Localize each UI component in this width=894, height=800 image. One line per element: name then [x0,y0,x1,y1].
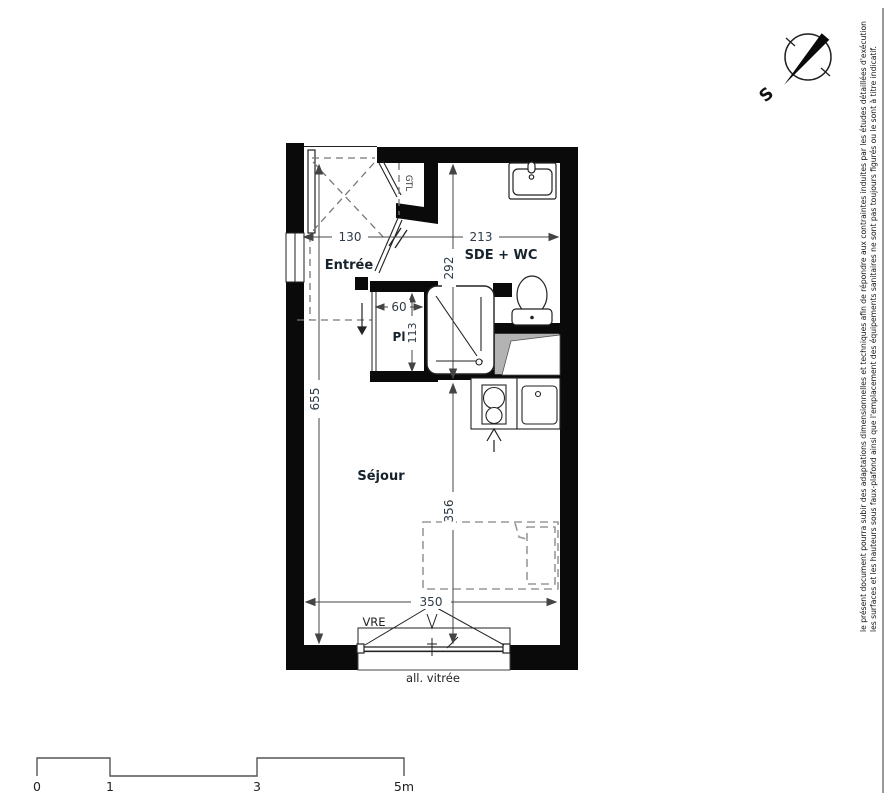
dim-sde-height: 292 [442,257,456,280]
duct-symbol [494,333,560,375]
dim-entree-width: 130 [339,230,362,244]
washbasin-symbol [509,162,556,199]
room-label-sejour: Séjour [357,469,405,484]
left-wall-window-symbol [286,233,304,282]
scale-bar: 0 1 3 5m [33,758,414,794]
compass-icon: S [756,33,831,107]
kitchenette-symbol [471,378,560,429]
room-label-placard: Pl [393,330,406,344]
scale-tick-0: 0 [33,779,41,794]
entry-direction-arrow [358,303,366,334]
placard-front-lines [372,292,376,371]
window-sill [358,651,510,670]
shutter-label: VRE [362,615,385,629]
scale-tick-5m: 5m [394,779,414,794]
dim-sde-width: 213 [470,230,493,244]
toilet-symbol [512,276,552,325]
compass-south-label: S [756,84,778,107]
floor-plan-page: 130 213 292 655 356 60 113 350 Entrée SD… [0,0,894,800]
dim-placard-width: 60 [391,300,406,314]
gtl-door-leaf [379,161,401,197]
dim-sejour-height: 655 [308,388,322,411]
room-label-sde-wc: SDE + WC [465,248,538,263]
bed-symbol [423,522,558,589]
dim-window-width: 350 [420,595,443,609]
bathroom-door-leaf [375,218,402,273]
dim-sejour-lower-height: 356 [442,500,456,523]
kitchen-arrow [487,429,501,452]
dim-placard-height: 113 [406,323,419,344]
room-label-gtl: GTL [403,175,413,191]
glazing-label: all. vitrée [406,671,460,685]
disclaimer-line-1: le présent document pourra subir des ada… [859,21,868,632]
disclaimer-text: le présent document pourra subir des ada… [859,8,883,793]
scale-tick-1: 1 [106,779,114,794]
room-label-entree: Entrée [325,258,374,273]
scale-tick-3: 3 [253,779,261,794]
disclaimer-line-2: les surfaces et les hauteurs sous faux-p… [869,46,878,632]
shower-symbol [427,286,494,374]
floor-plan-drawing: 130 213 292 655 356 60 113 350 Entrée SD… [0,0,894,800]
